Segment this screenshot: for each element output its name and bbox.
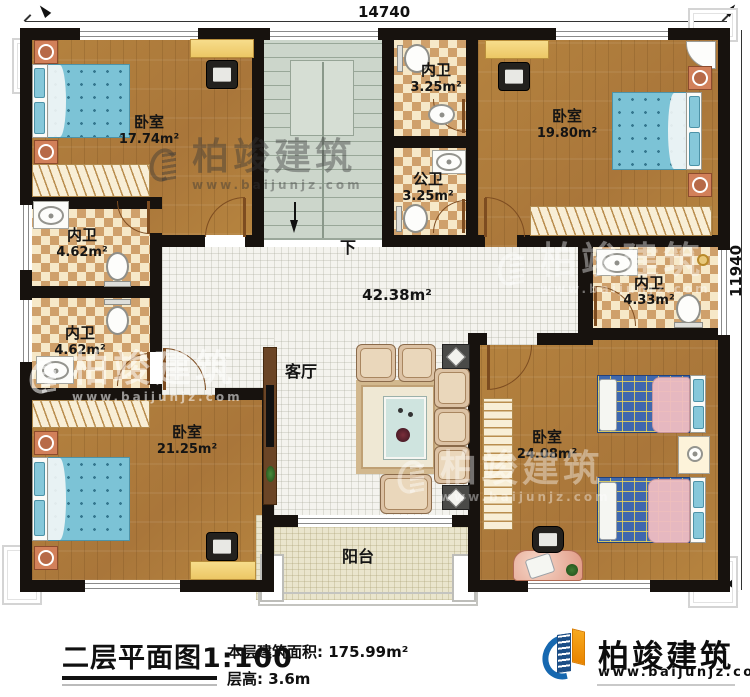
- door-leaf: [163, 348, 166, 390]
- computer-icon: [532, 526, 564, 553]
- table-decor: [396, 428, 410, 442]
- wall: [578, 247, 593, 340]
- room-label: 阳台: [342, 549, 374, 565]
- window: [270, 28, 378, 40]
- toilet-icon: [106, 252, 129, 281]
- stair-edge: [264, 238, 382, 240]
- room-label: 内卫: [65, 326, 95, 341]
- wall: [537, 333, 593, 345]
- headboard-cushion: [34, 68, 45, 98]
- desk: [485, 40, 549, 59]
- door-leaf: [462, 99, 465, 133]
- sofa-seat: [356, 344, 396, 382]
- pendant-lamp-icon: [697, 254, 709, 266]
- headboard-cushion: [689, 96, 700, 128]
- room-label: 内卫: [421, 63, 451, 78]
- door-leaf: [487, 345, 490, 389]
- wall: [150, 233, 162, 352]
- door-leaf: [147, 201, 150, 234]
- headboard-cushion: [693, 481, 704, 508]
- floor-plan-page: 14740 11940: [0, 0, 750, 697]
- room-label: 公卫: [413, 172, 443, 187]
- room-label: 卧室: [172, 425, 202, 440]
- window: [20, 205, 32, 270]
- window: [80, 28, 198, 40]
- toilet-icon: [674, 322, 703, 328]
- balcony-railing: [258, 592, 478, 606]
- logo-building-orange: [572, 628, 585, 665]
- wall: [20, 286, 150, 298]
- room-area: 42.38m²: [362, 288, 432, 303]
- bed-sheet: [668, 93, 686, 169]
- nightstand: [688, 173, 712, 197]
- wall: [252, 39, 264, 247]
- toilet-icon: [397, 45, 403, 72]
- bed-sheet: [48, 65, 66, 137]
- headboard-cushion: [693, 512, 704, 539]
- wall: [517, 235, 730, 247]
- tv-icon: [266, 385, 274, 447]
- window: [556, 28, 668, 40]
- room-label: 卧室: [532, 430, 562, 445]
- room-label: 客厅: [285, 364, 317, 380]
- wall: [274, 515, 298, 527]
- side-table: [442, 344, 470, 369]
- toilet-icon: [403, 204, 428, 233]
- wardrobe: [530, 206, 712, 236]
- room-area: 3.25m²: [402, 190, 453, 203]
- wardrobe: [32, 164, 150, 197]
- door-leaf: [594, 286, 597, 326]
- title-underline-shadow: [62, 684, 217, 686]
- headboard-cushion: [34, 462, 45, 496]
- table-decor: [408, 412, 413, 417]
- title-underline: [62, 676, 217, 680]
- lamp: [687, 446, 703, 462]
- wall: [245, 235, 264, 247]
- stairs-direction-label: 下: [340, 240, 356, 256]
- toilet-icon: [396, 206, 402, 232]
- room-area: 4.62m²: [54, 344, 105, 357]
- window: [718, 250, 730, 335]
- room-label: 卧室: [552, 109, 582, 124]
- wardrobe: [32, 400, 150, 428]
- wall: [150, 197, 162, 203]
- sink-icon: [42, 361, 69, 380]
- toilet-icon: [106, 306, 129, 335]
- sink-icon: [428, 104, 455, 125]
- sofa-seat: [434, 408, 470, 446]
- bed-sheet: [48, 458, 66, 540]
- toilet-icon: [676, 294, 701, 324]
- wall: [382, 235, 485, 247]
- nightstand: [34, 40, 58, 64]
- sink-icon: [436, 153, 462, 171]
- toilet-icon: [104, 281, 131, 287]
- floor-height-text: 层高: 3.6m: [227, 668, 310, 689]
- sofa-seat: [380, 474, 432, 514]
- room-area: 3.25m²: [410, 81, 461, 94]
- blanket: [652, 377, 690, 433]
- nightstand: [34, 546, 58, 570]
- side-table: [442, 485, 470, 510]
- room-area: 4.33m²: [623, 294, 674, 307]
- room-area: 17.74m²: [119, 133, 179, 146]
- computer-icon: [498, 62, 530, 91]
- window: [20, 300, 32, 362]
- wall: [382, 136, 478, 148]
- door-leaf: [462, 199, 465, 233]
- window: [528, 580, 650, 592]
- computer-icon: [206, 532, 238, 561]
- wall: [20, 388, 162, 400]
- wall: [593, 328, 730, 340]
- headboard-cushion: [34, 500, 45, 536]
- pillow: [599, 379, 617, 431]
- window: [85, 580, 180, 592]
- sink-icon: [602, 253, 632, 273]
- room-area: 19.80m²: [537, 127, 597, 140]
- headboard-cushion: [693, 406, 704, 429]
- floor-area-text: 本层建筑面积: 175.99m²: [227, 641, 408, 662]
- nightstand: [34, 431, 58, 455]
- headboard-cushion: [689, 132, 700, 166]
- room-area: 21.25m²: [157, 443, 217, 456]
- headboard-cushion: [34, 102, 45, 134]
- brand-logo-icon: [543, 628, 595, 684]
- wall: [452, 515, 468, 527]
- door-leaf: [484, 198, 487, 237]
- room-area: 4.62m²: [56, 246, 107, 259]
- dimension-top-line: [25, 21, 727, 22]
- sofa-seat: [434, 446, 470, 484]
- dimension-right-line: [741, 30, 742, 590]
- stair-down-arrow-icon: [290, 220, 298, 233]
- pillow: [599, 482, 617, 540]
- balcony-sliding-door: [298, 515, 452, 527]
- brand-rule: [597, 684, 735, 686]
- brand-site: www.baijunjz.com: [598, 665, 750, 680]
- north-arrow-icon: [37, 3, 51, 18]
- plant-icon: [266, 466, 275, 482]
- nightstand: [34, 140, 58, 164]
- door-leaf: [243, 198, 246, 237]
- room-area: 24.08m²: [517, 448, 577, 461]
- dimension-top: 14740: [358, 3, 410, 21]
- sofa-seat: [398, 344, 436, 382]
- room-label: 内卫: [634, 276, 664, 291]
- computer-icon: [206, 60, 238, 89]
- room-label: 卧室: [134, 115, 164, 130]
- wall: [162, 235, 205, 247]
- nightstand: [688, 66, 712, 90]
- desk: [190, 39, 254, 58]
- wall: [468, 333, 487, 345]
- sofa-seat: [434, 368, 470, 408]
- table-decor: [398, 408, 403, 413]
- room-label: 内卫: [67, 228, 97, 243]
- sink-icon: [38, 206, 64, 225]
- logo-building-blue: [557, 633, 571, 673]
- headboard-cushion: [693, 379, 704, 402]
- wardrobe: [483, 398, 513, 530]
- door-leaf: [147, 352, 150, 385]
- stair-rail: [322, 62, 324, 238]
- blanket: [648, 479, 690, 543]
- toilet-icon: [104, 299, 131, 305]
- plant-icon: [566, 564, 578, 576]
- desk: [190, 561, 256, 580]
